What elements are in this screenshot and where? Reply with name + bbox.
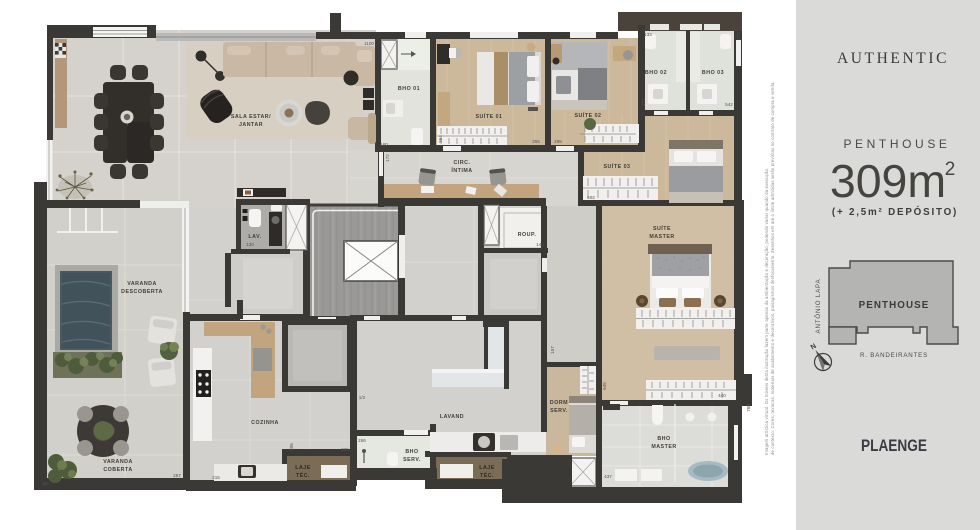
svg-text:LAJE: LAJE — [479, 465, 495, 471]
svg-text:306: 306 — [289, 443, 294, 451]
svg-text:157: 157 — [550, 346, 555, 354]
svg-text:VARANDA: VARANDA — [127, 281, 157, 287]
svg-text:COZINHA: COZINHA — [251, 420, 279, 426]
svg-text:502: 502 — [587, 195, 595, 200]
svg-text:144: 144 — [536, 242, 544, 247]
svg-text:215: 215 — [212, 475, 220, 480]
svg-text:50: 50 — [42, 481, 48, 486]
svg-text:PLAENGE: PLAENGE — [861, 437, 927, 455]
svg-text:2: 2 — [945, 159, 956, 180]
svg-text:SERV.: SERV. — [550, 408, 568, 414]
svg-text:BHO 02: BHO 02 — [645, 70, 667, 76]
svg-text:DESCOBERTA: DESCOBERTA — [121, 289, 163, 295]
svg-text:PENTHOUSE: PENTHOUSE — [859, 300, 930, 311]
svg-text:DORM: DORM — [550, 400, 568, 406]
svg-text:(+ 2,5m² DEPÓSITO): (+ 2,5m² DEPÓSITO) — [832, 206, 958, 218]
svg-text:271: 271 — [736, 32, 741, 40]
svg-text:MASTER: MASTER — [649, 234, 674, 240]
svg-text:SUÍTE 01: SUÍTE 01 — [476, 112, 503, 120]
svg-text:133: 133 — [644, 32, 652, 37]
svg-text:1/2: 1/2 — [359, 395, 366, 400]
svg-text:1100: 1100 — [364, 41, 374, 46]
svg-text:JANTAR: JANTAR — [239, 122, 263, 128]
svg-text:R. BANDEIRANTES: R. BANDEIRANTES — [860, 352, 928, 359]
svg-text:130: 130 — [246, 242, 254, 247]
svg-text:MASTER: MASTER — [651, 444, 676, 450]
svg-text:LAVAND: LAVAND — [440, 414, 464, 420]
svg-text:CIRC.: CIRC. — [454, 160, 471, 166]
svg-text:271: 271 — [641, 98, 646, 106]
svg-text:ANTÔNIO LAPA: ANTÔNIO LAPA — [815, 278, 822, 333]
svg-text:645: 645 — [602, 382, 607, 390]
svg-text:160: 160 — [380, 142, 388, 147]
svg-text:ROUP.: ROUP. — [518, 232, 537, 238]
svg-text:SUÍTE: SUÍTE — [653, 224, 671, 232]
svg-text:215: 215 — [341, 447, 349, 452]
svg-text:Imagem artística virtual. Os m: Imagem artística virtual. Os móveis dest… — [764, 167, 769, 455]
svg-text:SUÍTE 02: SUÍTE 02 — [575, 111, 602, 119]
svg-text:172: 172 — [385, 154, 390, 162]
svg-text:BHO: BHO — [405, 449, 418, 455]
svg-text:de contexto. Cores, texturas,: de contexto. Cores, texturas, materiais … — [770, 81, 775, 455]
svg-text:LAJE: LAJE — [295, 465, 311, 471]
svg-text:SUÍTE 03: SUÍTE 03 — [604, 162, 631, 170]
svg-text:AUTHENTIC: AUTHENTIC — [837, 50, 949, 67]
svg-text:ÍNTIMA: ÍNTIMA — [451, 166, 472, 174]
svg-text:437: 437 — [604, 474, 612, 479]
svg-text:BHO 03: BHO 03 — [702, 70, 724, 76]
svg-text:SERV.: SERV. — [403, 457, 421, 463]
svg-text:266: 266 — [358, 438, 366, 443]
svg-text:542: 542 — [725, 102, 733, 107]
svg-text:SALA ESTAR/: SALA ESTAR/ — [231, 114, 271, 120]
svg-text:BHO 01: BHO 01 — [398, 86, 420, 92]
svg-text:BHO: BHO — [657, 436, 670, 442]
svg-text:TÉC.: TÉC. — [296, 471, 310, 479]
svg-text:COBERTA: COBERTA — [103, 467, 132, 473]
svg-text:309m: 309m — [830, 155, 946, 207]
svg-text:355: 355 — [532, 139, 540, 144]
svg-text:TÉC.: TÉC. — [480, 471, 494, 479]
svg-text:364: 364 — [438, 135, 443, 143]
svg-text:768: 768 — [746, 404, 751, 412]
svg-text:440: 440 — [718, 393, 726, 398]
svg-text:267: 267 — [173, 473, 181, 478]
svg-text:LAV.: LAV. — [248, 234, 261, 240]
svg-text:PENTHOUSE: PENTHOUSE — [843, 137, 950, 151]
svg-text:VARANDA: VARANDA — [103, 459, 133, 465]
svg-text:295: 295 — [554, 139, 562, 144]
